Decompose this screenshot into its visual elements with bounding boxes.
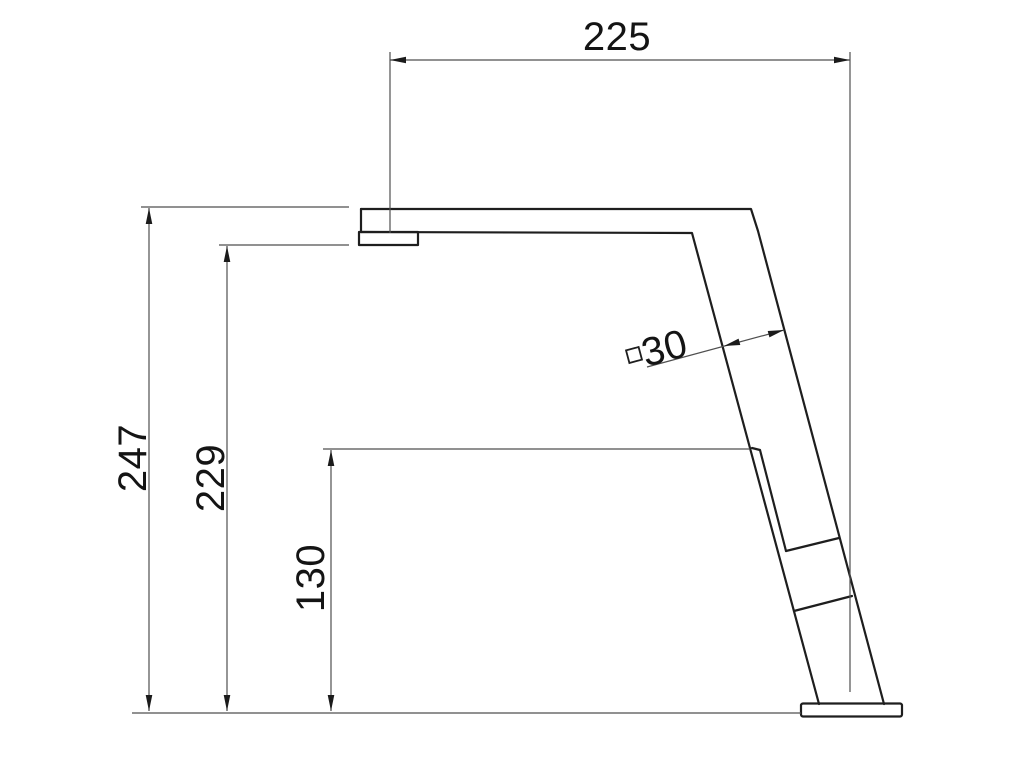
lever-height-dimension-label: 130 bbox=[289, 544, 333, 612]
outlet-height-dimension-label: 229 bbox=[189, 444, 233, 512]
reach-dimension-label: 225 bbox=[583, 15, 651, 59]
arrow-inner-icon bbox=[723, 339, 740, 350]
spout-underside-and-inner-body-edge bbox=[361, 232, 819, 704]
arrow-down-icon bbox=[224, 695, 231, 711]
arrow-left-icon bbox=[390, 57, 406, 64]
aerator-outlet bbox=[359, 232, 418, 245]
arrow-down-icon bbox=[146, 695, 153, 711]
dimension-outlet-height: 229 bbox=[189, 245, 349, 711]
arrow-up-icon bbox=[146, 208, 153, 224]
dimension-body-section: 30 bbox=[626, 321, 785, 375]
arrow-outer-icon bbox=[768, 327, 785, 338]
dimension-reach: 225 bbox=[390, 15, 850, 692]
faucet-dimension-drawing: 225 247 229 130 bbox=[0, 0, 1024, 768]
body-joint-lower bbox=[794, 596, 852, 611]
base-flange bbox=[801, 704, 902, 717]
body-section-dimension-label: 30 bbox=[637, 321, 692, 375]
arrow-up-icon bbox=[224, 246, 231, 262]
dimension-lever-height: 130 bbox=[289, 449, 750, 711]
arrow-down-icon bbox=[328, 695, 335, 711]
square-section-icon bbox=[626, 347, 642, 363]
total-height-dimension-label: 247 bbox=[111, 424, 155, 492]
arrow-right-icon bbox=[834, 57, 850, 64]
faucet-outline bbox=[359, 209, 902, 717]
technical-drawing-canvas: 225 247 229 130 bbox=[0, 0, 1024, 768]
body-joint-upper bbox=[786, 538, 839, 551]
lever-seam bbox=[752, 448, 786, 551]
arrow-up-icon bbox=[328, 450, 335, 466]
spout-top-and-outer-body-edge bbox=[361, 209, 884, 704]
